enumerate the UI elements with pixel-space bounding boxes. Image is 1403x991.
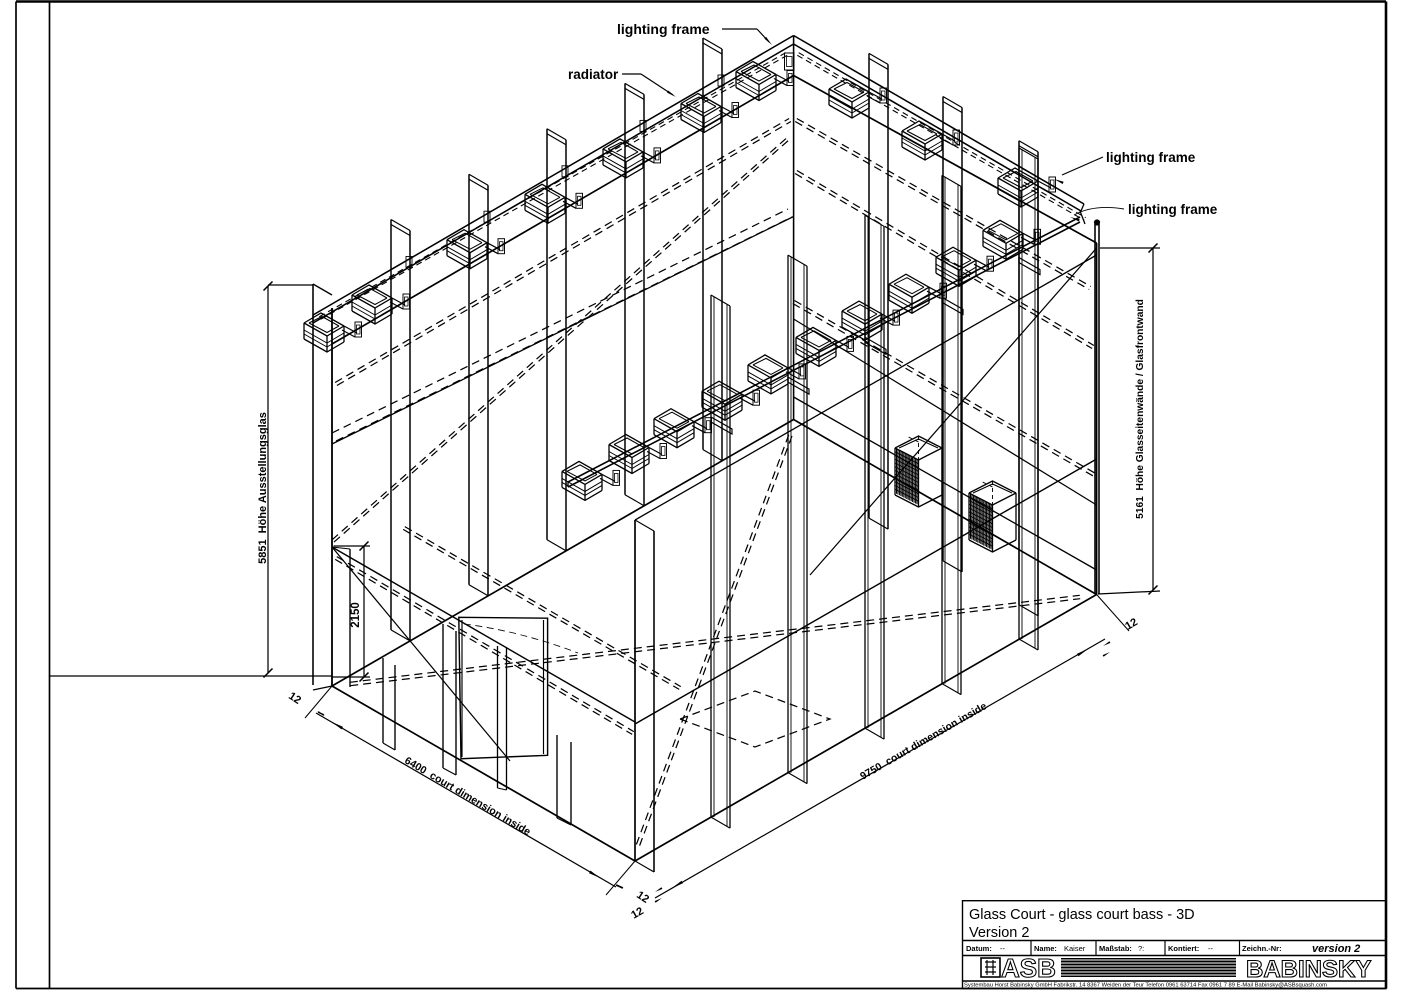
svg-text:Zeichn.-Nr:: Zeichn.-Nr: — [1242, 944, 1282, 953]
svg-text:ASB: ASB — [1001, 953, 1056, 983]
svg-text:12: 12 — [286, 690, 303, 707]
svg-text:Datum:: Datum: — [966, 944, 992, 953]
svg-text:Maßstab:: Maßstab: — [1099, 944, 1132, 953]
svg-text:9750 court dimension inside: 9750 court dimension inside — [858, 700, 989, 783]
svg-text:--: -- — [1000, 944, 1005, 953]
svg-text:5851 Höhe Ausstellungsglas: 5851 Höhe Ausstellungsglas — [257, 412, 269, 564]
svg-text:lighting frame: lighting frame — [1128, 202, 1218, 217]
svg-text:radiator: radiator — [568, 67, 619, 82]
svg-text:lighting frame: lighting frame — [617, 21, 710, 37]
svg-text:12: 12 — [629, 905, 646, 922]
svg-text:12: 12 — [1123, 616, 1140, 633]
svg-text:Glass Court - glass court bass: Glass Court - glass court bass - 3D — [969, 907, 1195, 923]
svg-text:Kaiser: Kaiser — [1064, 944, 1086, 953]
svg-text:Version 2: Version 2 — [969, 925, 1029, 941]
svg-text:lighting frame: lighting frame — [1106, 150, 1196, 165]
svg-text:version 2: version 2 — [1312, 943, 1360, 955]
svg-text:12: 12 — [634, 889, 651, 906]
svg-text:--: -- — [1208, 944, 1213, 953]
svg-text:6400 court dimension inside: 6400 court dimension inside — [402, 755, 532, 839]
svg-text:Kontiert:: Kontiert: — [1168, 944, 1199, 953]
svg-text:2150: 2150 — [350, 602, 362, 628]
svg-text:Name:: Name: — [1034, 944, 1057, 953]
svg-text:BABINSKY: BABINSKY — [1246, 956, 1371, 983]
svg-text:?:: ?: — [1138, 944, 1144, 953]
svg-text:Systembau Horst Babinsky GmbH: Systembau Horst Babinsky GmbH Fabrikstr.… — [964, 983, 1327, 989]
svg-text:5161 Höhe Glasseitenwände / G: 5161 Höhe Glasseitenwände / Glasfrontwan… — [1135, 299, 1146, 519]
